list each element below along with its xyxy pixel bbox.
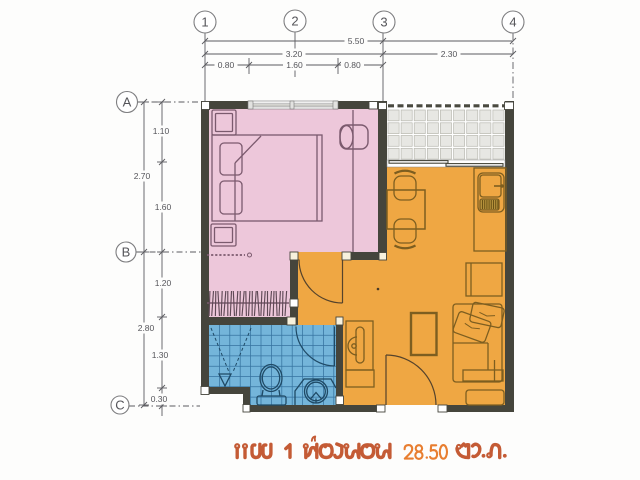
svg-text:3.20: 3.20 (286, 49, 303, 59)
svg-text:1.30: 1.30 (152, 350, 169, 360)
svg-text:1.60: 1.60 (155, 202, 172, 212)
svg-text:2: 2 (291, 14, 298, 29)
svg-text:1.20: 1.20 (155, 278, 172, 288)
svg-text:C: C (115, 398, 124, 413)
svg-text:2.30: 2.30 (441, 49, 458, 59)
svg-text:0.80: 0.80 (344, 60, 361, 70)
svg-text:2.80: 2.80 (138, 323, 155, 333)
svg-text:A: A (123, 95, 132, 110)
svg-text:2.70: 2.70 (134, 171, 151, 181)
svg-text:0.30: 0.30 (151, 394, 168, 404)
svg-text:4: 4 (509, 15, 516, 30)
svg-text:B: B (122, 245, 131, 260)
svg-text:0.80: 0.80 (218, 60, 235, 70)
svg-text:5.50: 5.50 (348, 36, 365, 46)
svg-text:1.60: 1.60 (286, 60, 303, 70)
svg-text:1.10: 1.10 (153, 126, 170, 136)
svg-text:3: 3 (380, 15, 387, 30)
svg-text:1: 1 (201, 15, 208, 30)
